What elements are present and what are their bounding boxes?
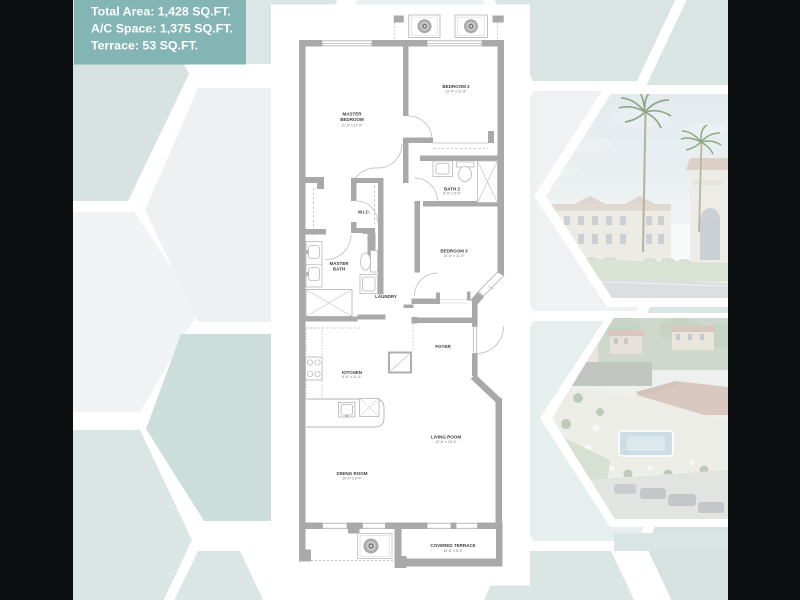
svg-text:11'-4" x 11'-8": 11'-4" x 11'-8" — [445, 90, 467, 94]
svg-text:Total Area: 1,428 SQ.FT.: Total Area: 1,428 SQ.FT. — [91, 5, 231, 19]
svg-text:11'-6" x 17'-6": 11'-6" x 17'-6" — [341, 124, 363, 128]
svg-text:MASTER: MASTER — [343, 112, 363, 117]
svg-text:8'-6" x 11'-6": 8'-6" x 11'-6" — [342, 375, 362, 379]
svg-text:DINING ROOM: DINING ROOM — [337, 471, 368, 476]
svg-text:FOYER: FOYER — [435, 344, 451, 349]
svg-text:MASTER: MASTER — [330, 261, 350, 266]
svg-text:LAUNDRY: LAUNDRY — [375, 294, 397, 299]
svg-text:8'-6" x 5'-0": 8'-6" x 5'-0" — [443, 192, 461, 196]
svg-text:BEDROOM: BEDROOM — [340, 117, 364, 122]
svg-text:10'-0" x 9'-4": 10'-0" x 9'-4" — [342, 477, 362, 481]
svg-text:COVERED TERRACE: COVERED TERRACE — [430, 543, 475, 548]
svg-text:10'-6" x 11'-9": 10'-6" x 11'-9" — [443, 254, 465, 258]
svg-text:Terrace: 53 SQ.FT.: Terrace: 53 SQ.FT. — [91, 39, 198, 53]
svg-text:W.I.C.: W.I.C. — [358, 210, 370, 215]
svg-text:LIVING ROOM: LIVING ROOM — [431, 435, 462, 440]
svg-text:BEDROOM 2: BEDROOM 2 — [442, 84, 470, 89]
svg-text:A/C Space: 1,375 SQ.FT.: A/C Space: 1,375 SQ.FT. — [91, 22, 233, 36]
svg-text:10'-6" x 5'-0": 10'-6" x 5'-0" — [443, 549, 463, 553]
svg-text:BEDROOM 3: BEDROOM 3 — [440, 249, 468, 254]
svg-text:12'-6" x 16'-4": 12'-6" x 16'-4" — [435, 440, 457, 444]
svg-text:BATH: BATH — [333, 267, 345, 272]
